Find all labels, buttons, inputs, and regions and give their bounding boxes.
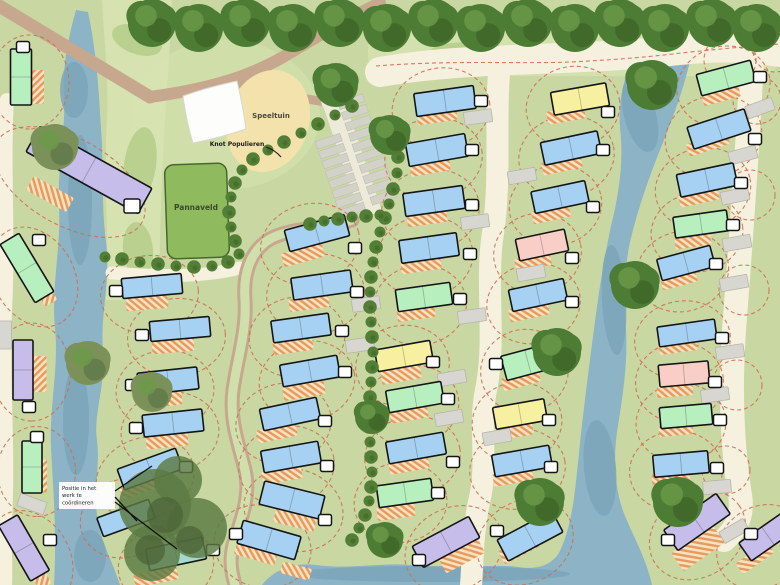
- hedge-bush-shade: [227, 210, 232, 215]
- hedge-bush-shade: [369, 380, 374, 385]
- plot-number-badge: [587, 202, 600, 213]
- hedge-bush-shade: [378, 230, 383, 235]
- water-depth: [60, 62, 88, 118]
- plot-number-badge: [351, 287, 364, 298]
- hedge-bush-shade: [396, 155, 401, 160]
- tree-canopy: [154, 456, 202, 504]
- plot-number-badge: [17, 42, 30, 53]
- plot-number-badge: [662, 535, 675, 546]
- hedge-bush-shade: [233, 181, 238, 186]
- plot-number-badge: [319, 515, 332, 526]
- note-line: coördineren: [62, 500, 94, 506]
- hedge-bush-shade: [282, 140, 287, 145]
- hedge-bush-shade: [369, 455, 374, 460]
- plot-number-badge: [44, 535, 57, 546]
- plot-number-badge: [427, 357, 440, 368]
- lodge-A5: [22, 432, 44, 494]
- plot-number-badge: [31, 432, 44, 443]
- hedge-bush-shade: [367, 499, 372, 504]
- hedge-bush-shade: [229, 195, 234, 200]
- plot-number-badge: [735, 178, 748, 189]
- hedge-bush-shade: [378, 213, 383, 218]
- water-depth: [290, 566, 570, 582]
- hedge-bush-shade: [368, 290, 373, 295]
- hedge-bush-shade: [229, 225, 234, 230]
- hedge-bush-shade: [364, 214, 369, 219]
- plot-number-badge: [432, 488, 445, 499]
- water-depth: [74, 530, 106, 582]
- plot-number-badge: [466, 200, 479, 211]
- plot-number-badge: [714, 415, 727, 426]
- hedge-bush-shade: [156, 262, 161, 267]
- plot-number-badge: [475, 96, 488, 107]
- hedge-bush-shade: [368, 440, 373, 445]
- plot-number-badge: [754, 72, 767, 83]
- plot-number-badge: [602, 107, 615, 118]
- hedge-bush-shade: [322, 219, 327, 224]
- terrace: [34, 356, 47, 392]
- plot-number-badge: [490, 359, 503, 370]
- hedge-bush-shade: [368, 305, 373, 310]
- tree-canopy-shade: [176, 526, 204, 554]
- plot-number-badge: [413, 555, 426, 566]
- hedge-bush-shade: [387, 202, 392, 207]
- hedge-bush-shade: [369, 485, 374, 490]
- plot-number-badge: [749, 134, 762, 145]
- plot-number-badge: [710, 259, 723, 270]
- hedge-bush-shade: [251, 157, 256, 162]
- hedge-bush-shade: [350, 538, 355, 543]
- hedge-bush-shade: [333, 113, 338, 118]
- plot-number-badge: [745, 529, 758, 540]
- hedge-bush-shade: [336, 217, 341, 222]
- plot-number-badge: [709, 377, 722, 388]
- hedge-bush-shade: [370, 470, 375, 475]
- plot-number-badge: [442, 394, 455, 405]
- plot-number-badge: [543, 415, 556, 426]
- plot-number-badge: [110, 286, 123, 297]
- hedge-bush-shade: [299, 131, 304, 136]
- shed: [702, 479, 731, 494]
- plot-number-badge: [711, 463, 724, 474]
- hedge-bush-shade: [374, 245, 379, 250]
- plot-number-badge: [339, 367, 352, 378]
- shed: [0, 321, 12, 349]
- hedge-bush-shade: [138, 260, 143, 265]
- hedge-bush-shade: [371, 350, 376, 355]
- hedge-bush-shade: [210, 264, 215, 269]
- plot-number-badge: [33, 235, 46, 246]
- plot-number-badge: [447, 457, 460, 468]
- plot-number-badge: [136, 330, 149, 341]
- poplars-label: Knot Populieren: [210, 141, 265, 148]
- hedge-bush-shade: [240, 168, 245, 173]
- hedge-bush-shade: [371, 260, 376, 265]
- hedge-bush-shade: [370, 365, 375, 370]
- hedge-bush-shade: [103, 255, 108, 260]
- note-line: Positie in het: [62, 486, 96, 492]
- hedge-bush-shade: [316, 122, 321, 127]
- plot-number-badge: [727, 220, 740, 231]
- plot-number-badge: [321, 461, 334, 472]
- plot-number-badge: [716, 333, 729, 344]
- hedge-bush-shade: [233, 239, 238, 244]
- plot-number-badge: [466, 145, 479, 156]
- hedge-bush-shade: [192, 265, 197, 270]
- lodge-A1: [11, 42, 32, 106]
- hedge-bush-shade: [363, 513, 368, 518]
- hedge-bush-shade: [237, 252, 242, 257]
- plot-number-badge: [566, 297, 579, 308]
- hedge-bush-shade: [350, 215, 355, 220]
- plot-number-badge: [319, 416, 332, 427]
- plot-number-badge: [597, 145, 610, 156]
- plot-number-badge: [130, 423, 143, 434]
- site-plan: SpeeltuinKnot PopulierenPannaveldPositie…: [0, 0, 780, 585]
- hedge-bush-shade: [369, 320, 374, 325]
- hedge-bush-shade: [368, 395, 373, 400]
- plot-number-badge: [124, 199, 140, 213]
- plot-number-badge: [230, 529, 243, 540]
- plot-number-badge: [454, 294, 467, 305]
- plot-number-badge: [23, 402, 36, 413]
- hedge-bush-shade: [391, 187, 396, 192]
- hedge-bush-shade: [120, 257, 125, 262]
- plot-number-badge: [336, 326, 349, 337]
- hedge-bush-shade: [174, 264, 179, 269]
- plot-number-badge: [349, 243, 362, 254]
- hedge-bush-shade: [226, 260, 231, 265]
- tree-canopy-shade: [135, 535, 165, 565]
- note-line: werk te: [62, 493, 82, 499]
- hedge-bush-shade: [395, 171, 400, 176]
- hedge-bush-shade: [369, 275, 374, 280]
- plot-number-badge: [545, 462, 558, 473]
- hedge-bush-shade: [357, 526, 362, 531]
- terrace: [32, 70, 44, 104]
- plot-number-badge: [464, 249, 477, 260]
- tree-canopy-shade: [147, 497, 183, 533]
- plot-number-badge: [491, 526, 504, 537]
- hedge-bush-shade: [350, 104, 355, 109]
- hedge-bush-shade: [370, 335, 375, 340]
- playground-label: Speeltuin: [252, 112, 290, 120]
- site-plan-svg: SpeeltuinKnot PopulierenPannaveldPositie…: [0, 0, 780, 585]
- plot-number-badge: [566, 253, 579, 264]
- hedge-bush-shade: [308, 222, 313, 227]
- field-label: Pannaveld: [174, 203, 218, 212]
